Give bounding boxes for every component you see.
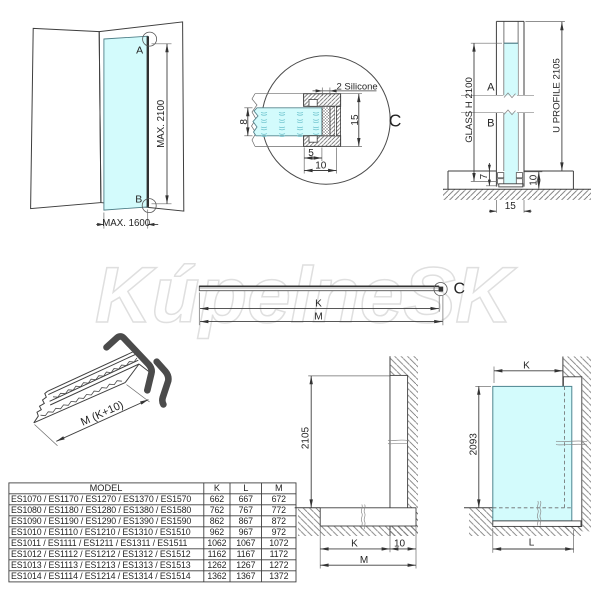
svg-text:C: C [389, 111, 402, 131]
svg-text:MAX. 2100: MAX. 2100 [156, 99, 167, 148]
svg-text:972: 972 [272, 527, 287, 537]
svg-text:672: 672 [272, 494, 287, 504]
svg-text:1162: 1162 [208, 549, 227, 559]
svg-text:B: B [487, 117, 494, 129]
svg-text:2093: 2093 [468, 433, 479, 456]
svg-text:667: 667 [239, 494, 254, 504]
svg-text:767: 767 [239, 505, 254, 515]
svg-text:M: M [275, 483, 283, 493]
svg-text:K: K [315, 299, 322, 310]
svg-text:1372: 1372 [269, 571, 288, 581]
svg-text:ES1010 / ES1110 / ES1210 / ES1: ES1010 / ES1110 / ES1210 / ES1310 / ES15… [11, 527, 191, 537]
svg-text:M: M [314, 312, 322, 323]
svg-text:7: 7 [479, 173, 490, 179]
svg-text:MAX. 1600: MAX. 1600 [102, 218, 151, 229]
svg-text:ES1013 / ES1113 / ES1213 / ES1: ES1013 / ES1113 / ES1213 / ES1313 / ES15… [11, 560, 191, 570]
svg-text:962: 962 [210, 527, 225, 537]
svg-text:2105: 2105 [301, 426, 312, 449]
svg-text:K: K [214, 483, 221, 493]
svg-text:C: C [454, 280, 466, 297]
svg-text:GLASS H 2100: GLASS H 2100 [464, 77, 475, 143]
svg-text:L: L [529, 537, 535, 548]
svg-text:10: 10 [315, 160, 327, 171]
svg-text:L: L [243, 483, 248, 493]
svg-text:1262: 1262 [207, 560, 226, 570]
svg-text:8: 8 [239, 119, 250, 125]
svg-text:967: 967 [239, 527, 254, 537]
svg-text:10: 10 [528, 174, 539, 186]
svg-text:867: 867 [239, 516, 254, 526]
svg-text:A: A [487, 81, 495, 93]
svg-text:M: M [360, 555, 368, 566]
svg-text:ES1014 / ES1114 / ES1214 / ES1: ES1014 / ES1114 / ES1214 / ES1314 / ES15… [11, 571, 191, 581]
svg-text:ES1011 / ES1111 / ES1211 / ES1: ES1011 / ES1111 / ES1211 / ES1311 / ES15… [11, 538, 187, 548]
svg-text:10: 10 [394, 539, 406, 550]
svg-text:662: 662 [210, 494, 225, 504]
svg-text:772: 772 [272, 505, 287, 515]
svg-text:K: K [523, 361, 530, 372]
svg-text:ES1090 / ES1190 / ES1290 / ES1: ES1090 / ES1190 / ES1290 / ES1390 / ES15… [11, 516, 191, 526]
svg-text:1272: 1272 [269, 560, 288, 570]
svg-text:15: 15 [505, 201, 517, 212]
svg-text:ES1012 / ES1112 / ES1212 / ES1: ES1012 / ES1112 / ES1212 / ES1312 / ES15… [11, 549, 191, 559]
svg-text:1172: 1172 [270, 549, 289, 559]
svg-text:872: 872 [272, 516, 287, 526]
svg-text:1167: 1167 [237, 549, 256, 559]
svg-text:762: 762 [210, 505, 225, 515]
svg-text:MODEL: MODEL [90, 483, 123, 493]
svg-text:ES1070 / ES1170 / ES1270 / ES1: ES1070 / ES1170 / ES1270 / ES1370 / ES15… [11, 494, 191, 504]
svg-text:5: 5 [308, 148, 314, 159]
svg-text:1267: 1267 [236, 560, 255, 570]
svg-text:A: A [136, 44, 143, 56]
svg-text:1362: 1362 [207, 571, 226, 581]
svg-text:B: B [135, 193, 142, 205]
svg-text:1367: 1367 [236, 571, 255, 581]
svg-text:ES1080 / ES1180 / ES1280 / ES1: ES1080 / ES1180 / ES1280 / ES1380 / ES15… [11, 505, 191, 515]
svg-text:U PROFILE 2105: U PROFILE 2105 [551, 58, 562, 133]
svg-text:1062: 1062 [207, 538, 226, 548]
svg-text:862: 862 [210, 516, 225, 526]
svg-text:K: K [351, 539, 358, 550]
svg-text:1067: 1067 [236, 538, 255, 548]
svg-text:15: 15 [350, 114, 361, 126]
svg-text:1072: 1072 [269, 538, 288, 548]
